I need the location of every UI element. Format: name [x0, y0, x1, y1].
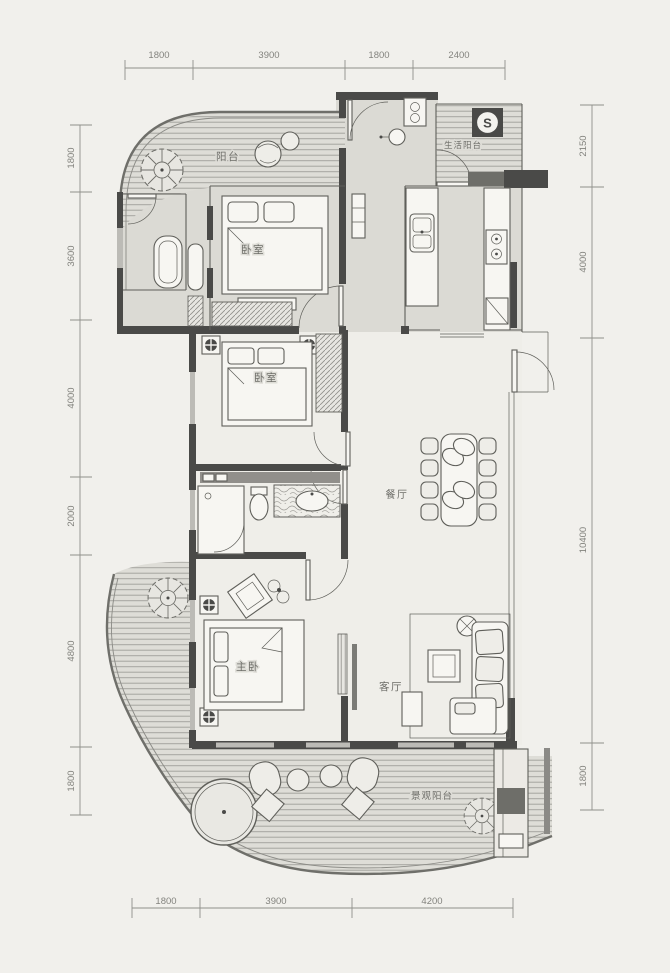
service-balcony-label: 生活阳台 [444, 140, 482, 150]
dim-left-2: 4000 [66, 387, 77, 408]
shower-icon [198, 486, 244, 554]
dim-right-1: 4000 [578, 251, 589, 272]
floorplan-page: 阳台 S 生活阳台 景观阳台 [0, 0, 670, 973]
side-cabinet [402, 692, 422, 726]
bedroom-mid-label: 卧室 [254, 371, 278, 384]
dim-right-2: 10400 [578, 527, 589, 553]
floorplan-drawing: 阳台 S 生活阳台 景观阳台 [0, 0, 670, 973]
bedroom-top-label: 卧室 [241, 243, 265, 256]
washer-icon [404, 98, 426, 126]
flower-marker-icon [202, 336, 220, 354]
tree-icon [148, 578, 188, 618]
living-room-label: 客厅 [379, 680, 403, 693]
dim-bottom-0: 1800 [155, 896, 176, 907]
svg-text:S: S [483, 116, 492, 131]
sink-icon [410, 214, 434, 252]
master-bedroom-label: 主卧 [236, 660, 260, 673]
round-table-icon [191, 779, 257, 845]
toilet-icon [250, 487, 268, 520]
view-balcony-label: 景观阳台 [411, 790, 453, 802]
vanity-icon [274, 485, 340, 517]
balcony-top-label: 阳台 [216, 150, 240, 163]
dim-left-5: 1800 [66, 770, 77, 791]
dim-bottom-2: 4200 [421, 896, 442, 907]
coffee-table-icon [428, 650, 460, 682]
stove-icon [486, 230, 507, 264]
dimension-chain-left: 1800 3600 4000 2000 4800 1800 [66, 125, 92, 815]
wardrobe-hatch [212, 302, 292, 326]
dim-top-1: 3900 [258, 50, 279, 61]
wardrobe-hatch [316, 334, 342, 412]
dim-left-4: 4800 [66, 640, 77, 661]
dimension-chain-right: 2150 4000 10400 1800 [578, 105, 604, 810]
flower-marker-icon [200, 708, 218, 726]
dim-right-3: 1800 [578, 765, 589, 786]
dim-left-0: 1800 [66, 147, 77, 168]
dim-left-1: 3600 [66, 245, 77, 266]
dining-label: 餐厅 [386, 488, 409, 501]
water-heater-icon: S [472, 108, 503, 137]
dim-top-3: 2400 [448, 50, 469, 61]
dimension-chain-bottom: 1800 3900 4200 [132, 896, 513, 918]
bedroom-mid: 卧室 [202, 334, 342, 426]
dim-bottom-1: 3900 [265, 896, 286, 907]
dim-left-3: 2000 [66, 505, 77, 526]
tree-icon [141, 149, 183, 191]
dimension-chain-top: 1800 3900 1800 2400 [125, 50, 505, 80]
dim-right-0: 2150 [578, 135, 589, 156]
dim-top-2: 1800 [368, 50, 389, 61]
flower-marker-icon [200, 596, 218, 614]
dim-top-0: 1800 [148, 50, 169, 61]
